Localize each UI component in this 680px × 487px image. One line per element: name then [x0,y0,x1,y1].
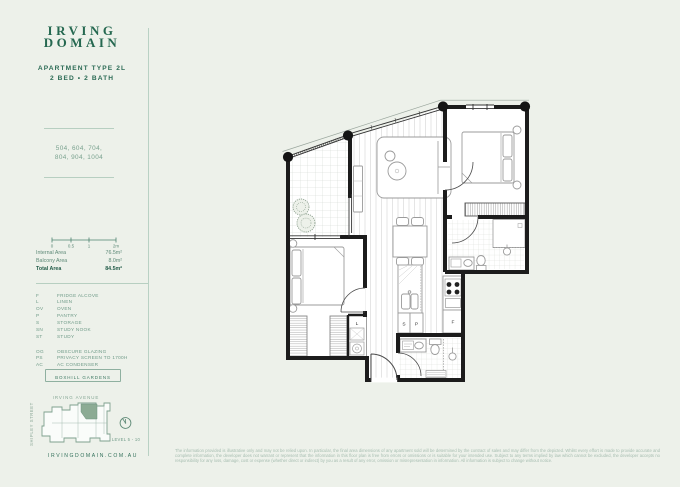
legend-item: STSTUDY [36,334,99,341]
legend-fixtures: FFRIDGE ALCOVE LLINEN OVOVEN PPANTRY SST… [36,293,99,341]
internal-area-row: Internal Area 76.5m² [36,249,122,257]
master-wardrobe [465,203,525,216]
scale-bar-line [52,238,116,243]
storage-label: S [402,322,405,328]
master-bed [462,126,521,189]
tv-unit [354,166,363,212]
legend-item: OGOBSCURE GLAZING [36,349,128,356]
floor-plan: L S P F [256,86,552,398]
balcony-area-row: Balcony Area 8.0m² [36,257,122,265]
internal-area-label: Internal Area [36,249,66,257]
entry-opening [371,378,398,383]
apartment-numbers-line2: 804, 904, 1004 [44,154,114,163]
disclaimer-text: The information provided is illustrative… [175,448,660,464]
area-summary: Internal Area 76.5m² Balcony Area 8.0m² … [36,249,122,274]
legend-item: SNSTUDY NOOK [36,327,99,334]
kitchen-island [398,265,422,313]
scale-bar: 0 0.5 1 2m [46,233,122,249]
legend-item: FFRIDGE ALCOVE [36,293,99,300]
legend-item: PSPRIVACY SCREEN TO 1700H [36,355,128,362]
sofa [377,137,451,198]
vertical-divider [148,28,149,456]
legend-item: ACAC CONDENSER [36,362,128,369]
bed-bath-subtitle: 2 BED • 2 BATH [20,75,144,82]
kitchen-counter-cooktop [443,276,463,310]
bedroom2-wardrobe-left [289,316,307,357]
apartment-numbers-box: 504, 604, 704, 804, 904, 1004 [44,128,114,178]
fridge-label: F [452,320,455,326]
bedroom2-wardrobe-right [330,316,347,357]
key-plan: SHIPLEY STREET LEVEL 5 - 10 [24,396,154,448]
level-range-label: LEVEL 5 - 10 [112,437,141,442]
balcony-area-label: Balcony Area [36,257,67,265]
internal-area-value: 76.5m² [106,249,123,257]
bedroom2-bed [289,240,344,313]
column-dot [343,130,353,140]
apartment-numbers-line1: 504, 604, 704, [44,145,114,154]
building-footprint [42,403,110,442]
legend-item: LLINEN [36,299,99,306]
legend-item: PPANTRY [36,313,99,320]
apartment-type-title: APARTMENT TYPE 2L [20,65,144,72]
brochure-page: IRVING DOMAIN APARTMENT TYPE 2L 2 BED • … [0,0,680,487]
column-dot [283,152,293,162]
total-area-row: Total Area 84.5m² [36,265,122,273]
brand-line2: DOMAIN [20,37,144,49]
brand-logo: IRVING DOMAIN [20,25,144,49]
balcony-area-value: 8.0m² [108,257,122,265]
column-dot [520,101,530,111]
total-area-label: Total Area [36,265,61,273]
legend-item: OVOVEN [36,306,99,313]
sidebar-divider-rule [36,283,148,284]
website-link[interactable]: IRVINGDOMAIN.COM.AU [48,453,138,459]
legend-glazing: OGOBSCURE GLAZING PSPRIVACY SCREEN TO 17… [36,349,128,370]
linen-label: L [356,321,359,327]
column-dot [438,101,448,111]
boxhill-gardens-button[interactable]: BOXHILL GARDENS [45,369,121,382]
shipley-street-label: SHIPLEY STREET [29,402,34,446]
pantry-label: P [415,322,418,328]
compass-icon [120,418,131,429]
legend-item: SSTORAGE [36,320,99,327]
total-area-value: 84.5m² [105,265,122,273]
